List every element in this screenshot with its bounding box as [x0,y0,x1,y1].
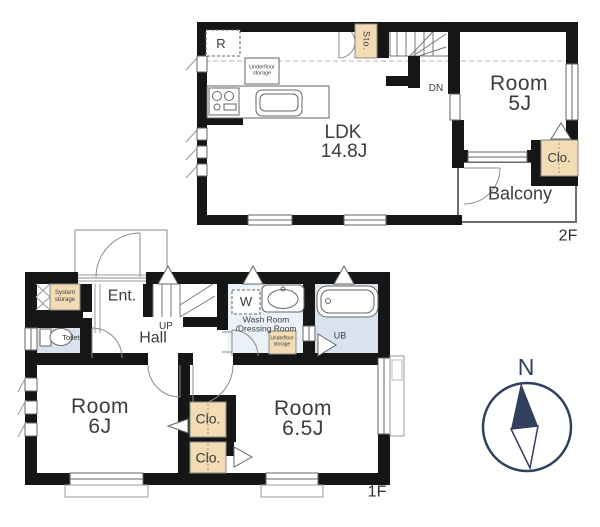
unit-bath-label: UB [334,331,347,340]
entrance-step-lines [95,284,100,333]
ldk-label: LDK [325,123,362,143]
storage-2f-label: Sto. [361,31,370,51]
room65-size-label: 6.5J [282,418,324,440]
closet2-opening-marker [234,447,252,467]
system-storage-label: System storage [51,290,79,304]
floor1-label: 1F [368,485,387,502]
underfloor-2f-label: Underfloor storage [246,65,278,78]
bathtub-icon [317,286,378,317]
washroom-label-2: /Dressing Room [236,325,297,334]
balcony-label: Balcony [488,185,552,204]
closet2-label: Clo. [196,451,221,466]
f1-outlines [75,230,167,278]
stairs-up-label: UP [159,322,173,333]
underfloor-1f-label: Underfloor storage [269,336,295,348]
washer-label: W [240,295,252,309]
floor-plan: LDK 14.8J Room 5J Balcony Clo. Sto. R Un… [0,0,600,527]
room6-size-label: 6J [88,416,111,438]
floor2-label: 2F [559,229,578,246]
closet1-label: Clo. [196,412,221,427]
entrance-door-arc [96,233,140,277]
stove-icon [209,88,239,115]
vanity-sink-icon [262,285,304,312]
bifold-door-icon [36,284,50,310]
toilet-label: Toilet [62,334,80,342]
compass-icon [483,383,571,471]
ldk-size-label: 14.8J [321,142,367,162]
room5-size-label: 5J [508,93,531,115]
closet-2f-label: Clo. [547,151,570,165]
stairs-1f-icon [153,284,215,317]
hall-label: Hall [139,331,167,348]
stairs-dn-label: DN [429,84,443,95]
refrigerator-label: R [216,37,225,51]
kitchen-icon [207,86,329,118]
entrance-label: Ent. [108,289,136,306]
water-heater-icon [390,356,404,436]
room6-door-arc [148,365,180,397]
compass-north-label: N [518,355,535,379]
